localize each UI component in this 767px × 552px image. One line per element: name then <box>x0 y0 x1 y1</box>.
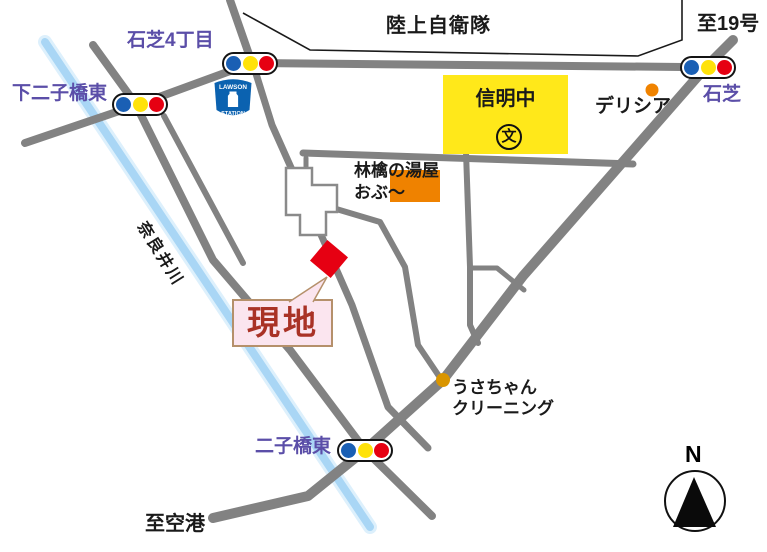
access-map: LAWSON STATION 陸上自衛隊 至19号 石芝4丁目 下二子橋東 石芝… <box>0 0 767 552</box>
label-to-airport: 至空港 <box>145 513 205 536</box>
site-red-marker <box>310 240 348 278</box>
label-delicia: デリシア <box>595 96 671 118</box>
delicia-dot <box>646 84 659 97</box>
signal-yellow-light <box>133 97 148 112</box>
usachan-cleaning-dot <box>436 373 450 387</box>
label-usachan-line2: クリーニング <box>452 399 554 419</box>
road-school-vertical <box>466 152 478 343</box>
label-genchi-site: 現地 <box>236 304 330 342</box>
signal-yellow-light <box>701 60 716 75</box>
station-text: STATION <box>221 111 245 117</box>
label-shinmei-school: 信明中 <box>443 88 568 111</box>
label-intersection-futagobashi: 二子橋東 <box>255 436 331 458</box>
traffic-light-ishishiba4 <box>222 52 278 75</box>
lawson-station-badge: LAWSON STATION <box>212 75 254 121</box>
compass <box>665 471 725 531</box>
building-outline <box>286 168 337 235</box>
signal-yellow-light <box>243 56 258 71</box>
map-base-drawing <box>0 0 767 552</box>
label-intersection-ishishiba: 石芝 <box>703 84 741 106</box>
signal-red-light <box>374 443 389 458</box>
label-ringo-line1: 林檎の湯屋 <box>354 161 439 181</box>
traffic-light-shimofutagobashi <box>112 93 168 116</box>
signal-blue-light <box>341 443 356 458</box>
traffic-light-ishishiba <box>680 56 736 79</box>
label-intersection-shimofutagobashi: 下二子橋東 <box>12 83 107 105</box>
signal-red-light <box>149 97 164 112</box>
signal-red-light <box>717 60 732 75</box>
signal-blue-light <box>116 97 131 112</box>
signal-blue-light <box>226 56 241 71</box>
compass-n-label: N <box>685 441 702 468</box>
label-to-route19: 至19号 <box>697 13 759 36</box>
signal-yellow-light <box>358 443 373 458</box>
signal-red-light <box>259 56 274 71</box>
signal-blue-light <box>684 60 699 75</box>
traffic-light-futagobashi <box>337 439 393 462</box>
lawson-text: LAWSON <box>219 84 247 91</box>
label-sdf-area: 陸上自衛隊 <box>386 15 491 38</box>
label-usachan-line1: うさちゃん <box>452 378 537 398</box>
label-ringo-line2: おぶ〜 <box>354 183 405 203</box>
road-top-main <box>252 63 683 67</box>
label-intersection-ishishiba4: 石芝4丁目 <box>127 30 214 52</box>
school-map-symbol: 文 <box>496 124 522 150</box>
